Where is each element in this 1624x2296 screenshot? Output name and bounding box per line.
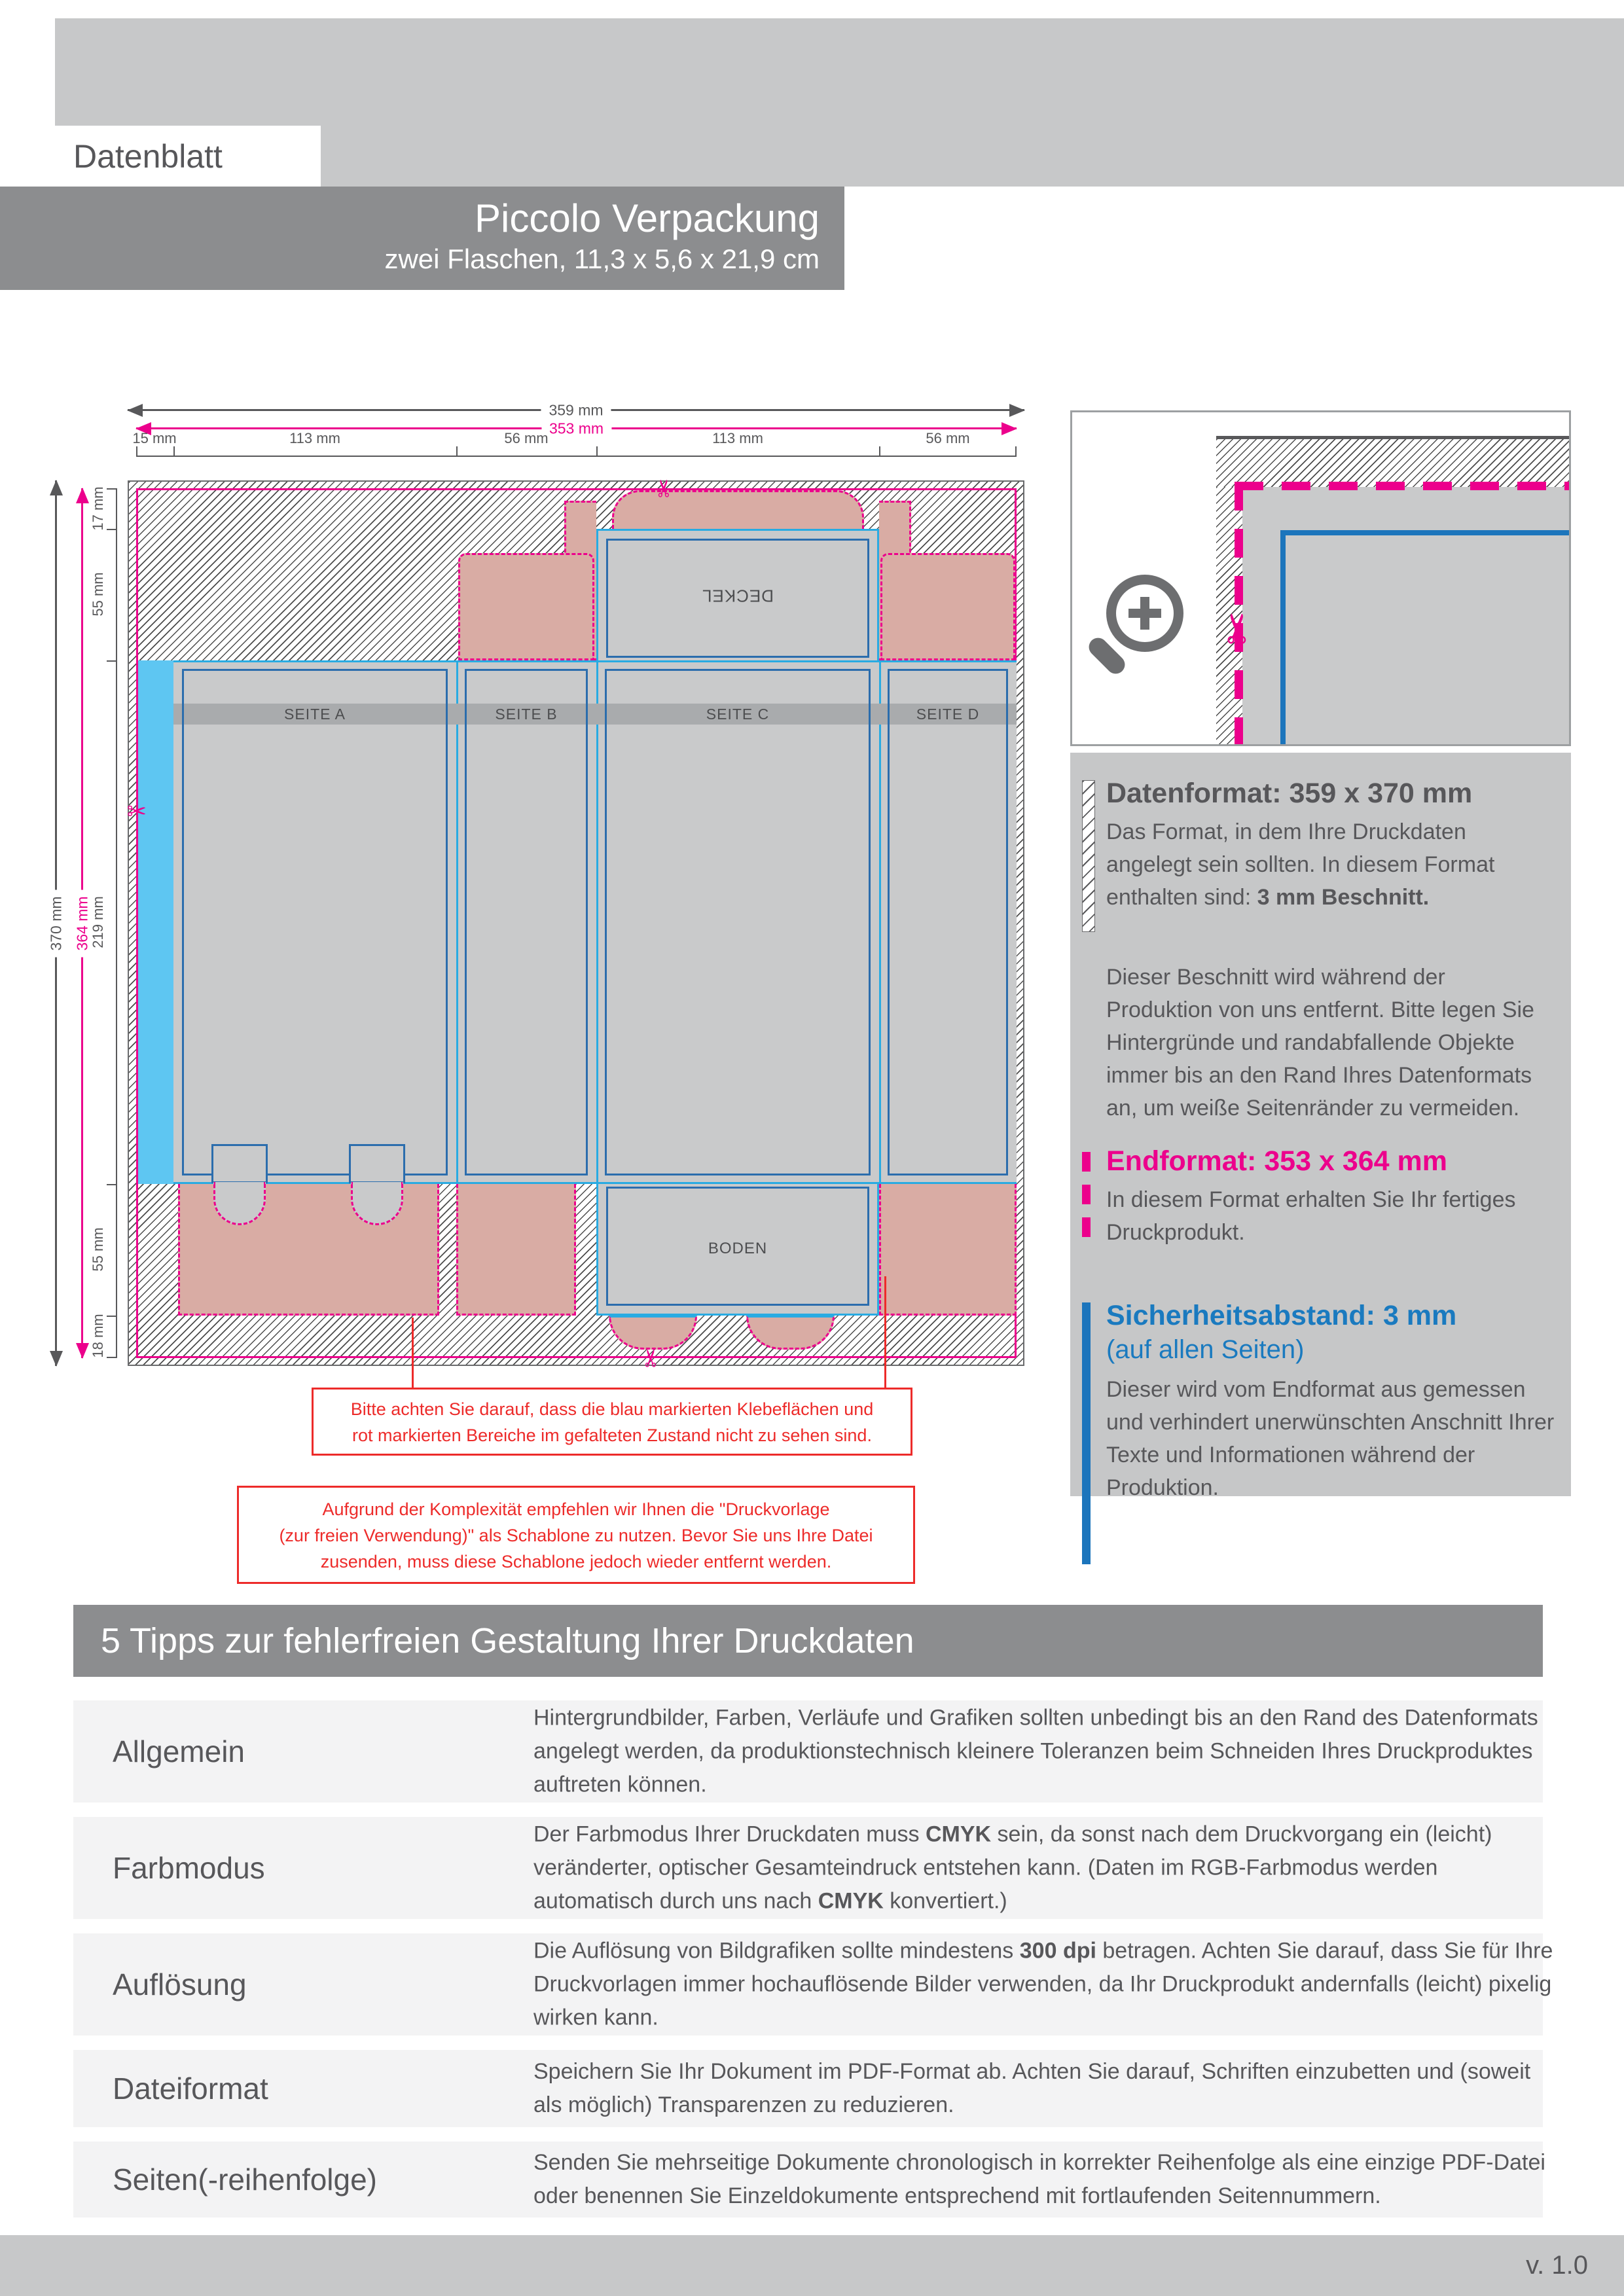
page-title: Datenblatt — [55, 126, 321, 188]
bottom-flap-seite-b — [456, 1184, 576, 1316]
seg-label: 17 mm — [90, 486, 107, 530]
datenformat-title: Datenformat: 359 x 370 mm — [1106, 778, 1472, 810]
fold-line — [456, 660, 458, 1184]
tips-banner: 5 Tipps zur fehlerfreien Gestaltung Ihre… — [73, 1605, 1543, 1677]
top-flap-seite-b — [458, 553, 594, 660]
sicherheitsabstand-title: Sicherheitsabstand: 3 mm — [1106, 1300, 1456, 1332]
glue-warning-note: Bitte achten Sie darauf, dass die blau m… — [312, 1388, 912, 1456]
tip-row-allgemein: Allgemein Hintergrundbilder, Farben, Ver… — [73, 1700, 1543, 1803]
sicherheitsabstand-subtitle: (auf allen Seiten) — [1106, 1335, 1304, 1365]
tip-row-dateiformat: Dateiformat Speichern Sie Ihr Dokument i… — [73, 2050, 1543, 2127]
fold-line — [879, 660, 881, 1184]
detail-bleed-hatch — [1216, 439, 1571, 487]
safety-rect-seite-c — [605, 669, 871, 1175]
note-line: (zur freien Verwendung)" als Schablone z… — [239, 1522, 913, 1549]
datenformat-paragraph: Dieser Beschnitt wird während der Produk… — [1106, 961, 1555, 1124]
text-segment: Senden Sie mehrseitige Dokumente chronol… — [533, 2150, 1545, 2208]
seg-label: 56 mm — [926, 430, 969, 447]
tip-label: Seiten(-reihenfolge) — [113, 2162, 377, 2197]
tip-body: Speichern Sie Ihr Dokument im PDF-Format… — [533, 2055, 1555, 2122]
template-warning-note: Aufgrund der Komplexität empfehlen wir I… — [237, 1486, 915, 1584]
datenformat-body: Das Format, in dem Ihre Druckdaten angel… — [1106, 816, 1545, 914]
footer-band: v. 1.0 — [0, 2235, 1624, 2296]
dim-label-353: 353 mm — [541, 420, 611, 437]
tip-body: Senden Sie mehrseitige Dokumente chronol… — [533, 2146, 1555, 2213]
tip-row-seitenreihenfolge: Seiten(-reihenfolge) Senden Sie mehrseit… — [73, 2142, 1543, 2217]
seg-label: 55 mm — [90, 572, 107, 616]
text-segment-bold: 3 mm Beschnitt. — [1257, 885, 1430, 910]
dim-arrow-353: 353 mm — [136, 427, 1017, 429]
format-info-panel: Datenformat: 359 x 370 mm Das Format, in… — [1070, 753, 1571, 1496]
safety-rect-seite-a — [182, 669, 448, 1175]
note-line: rot markierten Bereiche im gefalteten Zu… — [314, 1422, 911, 1448]
bleed-swatch-icon — [1082, 780, 1095, 932]
seg-label: 18 mm — [90, 1314, 107, 1357]
version-label: v. 1.0 — [0, 2235, 1624, 2296]
corner-detail-box: ✂ — [1070, 410, 1571, 746]
safety-swatch-icon — [1082, 1302, 1091, 1564]
tip-row-aufloesung: Auflösung Die Auflösung von Bildgrafiken… — [73, 1933, 1543, 2036]
detail-safety-line — [1280, 530, 1286, 746]
tuck-flap — [612, 490, 864, 531]
lock-tab — [349, 1144, 405, 1183]
text-segment: Die Auflösung von Bildgrafiken sollte mi… — [533, 1939, 1020, 1964]
panel-label-boden: BODEN — [708, 1240, 767, 1258]
text-segment-bold: CMYK — [818, 1889, 884, 1914]
dim-label-370: 370 mm — [45, 889, 67, 957]
boden-panel: BODEN — [596, 1184, 879, 1316]
detail-artwork-area — [1242, 487, 1571, 746]
tip-label: Allgemein — [113, 1734, 245, 1769]
note-line: zusenden, muss diese Schablone jedoch wi… — [239, 1549, 913, 1575]
tip-body: Die Auflösung von Bildgrafiken sollte mi… — [533, 1935, 1555, 2035]
text-segment-bold: CMYK — [926, 1822, 991, 1847]
tips-title: 5 Tipps zur fehlerfreien Gestaltung Ihre… — [73, 1605, 1543, 1677]
tip-label: Farbmodus — [113, 1850, 265, 1886]
dim-arrow-370: 370 mm — [55, 480, 57, 1366]
safety-rect-seite-d — [888, 669, 1008, 1175]
datasheet-page: Datenblatt Piccolo Verpackung zwei Flasc… — [0, 0, 1624, 2296]
note-leader-line — [884, 1276, 886, 1388]
scissors-icon: ✂ — [640, 1348, 663, 1368]
magnifier-icon — [1106, 575, 1183, 652]
tip-label: Dateiformat — [113, 2071, 268, 2106]
product-title: Piccolo Verpackung — [0, 187, 844, 241]
top-flap-seite-d — [880, 553, 1015, 660]
product-subtitle: zwei Flaschen, 11,3 x 5,6 x 21,9 cm — [0, 241, 844, 275]
lock-tab — [211, 1144, 268, 1183]
glue-strip — [138, 660, 173, 1184]
seg-label: 15 mm — [132, 430, 176, 447]
text-segment-bold: 300 dpi — [1020, 1939, 1096, 1964]
bottom-flap-seite-d — [879, 1184, 1017, 1316]
tip-body: Hintergrundbilder, Farben, Verläufe und … — [533, 1702, 1555, 1802]
detail-safety-line — [1280, 530, 1571, 535]
deckel-panel: DECKEL — [596, 529, 879, 660]
seg-label: 56 mm — [504, 430, 548, 447]
seg-label: 113 mm — [289, 430, 340, 447]
seg-label: 55 mm — [90, 1227, 107, 1271]
note-leader-line — [412, 1318, 414, 1388]
safety-rect-seite-b — [465, 669, 588, 1175]
tip-row-farbmodus: Farbmodus Der Farbmodus Ihrer Druckdaten… — [73, 1817, 1543, 1919]
product-banner: Piccolo Verpackung zwei Flaschen, 11,3 x… — [0, 187, 844, 290]
datenblatt-box: Datenblatt — [55, 126, 321, 187]
tip-label: Auflösung — [113, 1967, 247, 2002]
dim-label-359: 359 mm — [541, 401, 611, 419]
endformat-body: In diesem Format erhalten Sie Ihr fertig… — [1106, 1183, 1551, 1249]
panel-label-deckel: DECKEL — [702, 586, 774, 606]
text-segment: Hintergrundbilder, Farben, Verläufe und … — [533, 1706, 1538, 1797]
text-segment: Speichern Sie Ihr Dokument im PDF-Format… — [533, 2059, 1530, 2117]
text-segment: Der Farbmodus Ihrer Druckdaten muss — [533, 1822, 926, 1847]
note-line: Bitte achten Sie darauf, dass die blau m… — [314, 1396, 911, 1422]
detail-cut-line — [1235, 482, 1571, 490]
segment-ruler-top — [136, 456, 1017, 457]
segment-ruler-left — [116, 488, 117, 1358]
note-line: Aufgrund der Komplexität empfehlen wir I… — [239, 1496, 913, 1522]
text-segment: konvertiert.) — [884, 1889, 1007, 1914]
dim-arrow-359: 359 mm — [128, 409, 1024, 411]
seg-label: 113 mm — [712, 430, 763, 447]
endformat-swatch-icon — [1082, 1152, 1091, 1244]
dim-arrow-364: 364 mm — [81, 488, 83, 1358]
endformat-title: Endformat: 353 x 364 mm — [1106, 1145, 1447, 1177]
tip-body: Der Farbmodus Ihrer Druckdaten muss CMYK… — [533, 1818, 1555, 1918]
sicherheitsabstand-body: Dieser wird vom Endformat aus gemessen u… — [1106, 1373, 1558, 1504]
scissors-icon: ✂ — [127, 800, 147, 823]
seg-label: 219 mm — [90, 896, 107, 948]
scissors-icon: ✂ — [653, 478, 676, 498]
fold-line — [596, 660, 598, 1184]
scissors-icon: ✂ — [1218, 611, 1259, 645]
